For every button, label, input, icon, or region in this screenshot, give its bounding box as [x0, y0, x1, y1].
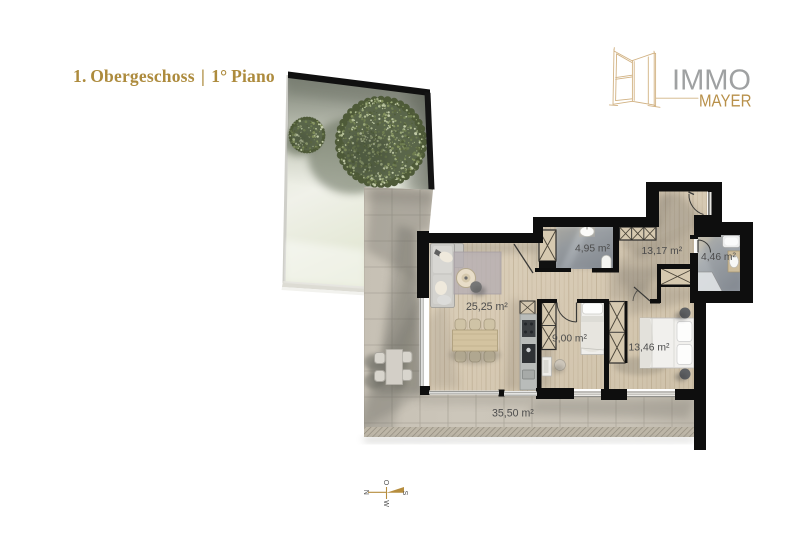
svg-text:9,00 m²: 9,00 m² — [552, 334, 587, 345]
svg-text:W: W — [382, 500, 389, 507]
svg-text:4,95 m²: 4,95 m² — [575, 244, 610, 255]
svg-text:N: N — [362, 490, 369, 495]
svg-text:13,46 m²: 13,46 m² — [629, 343, 671, 354]
svg-text:13,17 m²: 13,17 m² — [642, 246, 683, 257]
svg-text:S: S — [401, 491, 408, 496]
svg-text:35,50 m²: 35,50 m² — [492, 408, 534, 420]
svg-text:O: O — [382, 480, 389, 486]
svg-text:25,25 m²: 25,25 m² — [466, 301, 508, 313]
svg-text:4,46 m²: 4,46 m² — [701, 252, 736, 263]
